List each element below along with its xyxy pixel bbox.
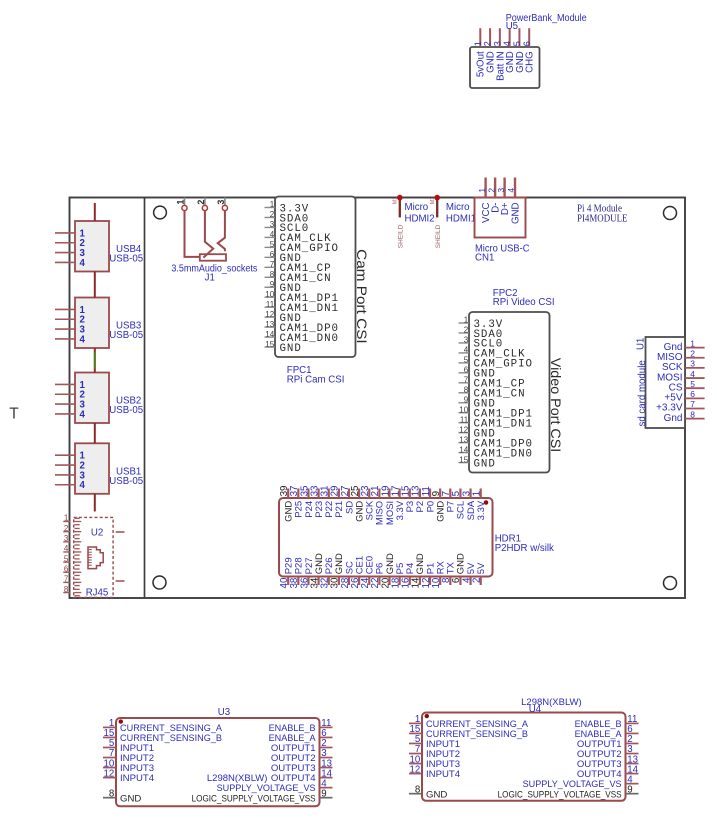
- svg-text:1: 1: [176, 200, 186, 205]
- svg-text:7: 7: [270, 260, 275, 269]
- svg-text:4: 4: [64, 544, 69, 553]
- svg-text:12: 12: [104, 768, 115, 779]
- svg-text:9: 9: [270, 280, 275, 289]
- svg-text:1: 1: [270, 200, 275, 209]
- svg-text:5: 5: [690, 379, 695, 389]
- svg-text:3: 3: [270, 220, 275, 229]
- svg-text:6: 6: [464, 366, 469, 375]
- svg-text:4: 4: [80, 480, 86, 491]
- svg-text:RJ45: RJ45: [86, 588, 109, 599]
- svg-text:1: 1: [472, 491, 483, 496]
- svg-text:15: 15: [459, 455, 468, 464]
- svg-text:U5: U5: [506, 21, 518, 32]
- svg-text:2: 2: [64, 524, 69, 533]
- svg-text:HDMI2: HDMI2: [405, 213, 435, 224]
- svg-text:5: 5: [270, 240, 275, 249]
- svg-text:PI4MODULE: PI4MODULE: [577, 213, 628, 225]
- svg-text:4: 4: [80, 258, 86, 269]
- svg-text:6: 6: [522, 41, 532, 46]
- svg-text:1: 1: [690, 338, 695, 348]
- svg-text:11: 11: [460, 415, 469, 424]
- svg-text:1: 1: [473, 41, 483, 46]
- svg-text:Micro: Micro: [405, 202, 429, 213]
- svg-text:13: 13: [459, 435, 468, 444]
- svg-text:U3: U3: [218, 707, 230, 718]
- svg-text:CN1: CN1: [475, 253, 494, 264]
- svg-text:GND: GND: [280, 343, 302, 355]
- svg-text:9: 9: [627, 784, 632, 795]
- svg-text:3: 3: [690, 359, 695, 369]
- svg-text:5: 5: [512, 41, 522, 46]
- svg-text:4: 4: [506, 188, 516, 193]
- svg-text:3: 3: [216, 200, 226, 205]
- svg-text:P2HDR w/silk: P2HDR w/silk: [495, 543, 554, 554]
- svg-text:6: 6: [64, 564, 69, 573]
- svg-text:3: 3: [496, 188, 506, 193]
- svg-text:1: 1: [64, 514, 69, 523]
- svg-text:INPUT4: INPUT4: [120, 773, 155, 784]
- svg-text:sd card module: sd card module: [637, 360, 648, 426]
- svg-text:USB-05: USB-05: [109, 330, 143, 341]
- svg-text:L298N(XBLW): L298N(XBLW): [207, 773, 268, 784]
- svg-text:3: 3: [464, 336, 469, 345]
- svg-text:2: 2: [472, 578, 483, 583]
- svg-text:LOGIC_SUPPLY_VOLTAGE_VSS: LOGIC_SUPPLY_VOLTAGE_VSS: [498, 789, 622, 800]
- svg-text:INPUT4: INPUT4: [426, 769, 461, 780]
- svg-text:SHEILD: SHEILD: [397, 224, 404, 248]
- svg-text:GND: GND: [510, 203, 521, 225]
- svg-text:LOGIC_SUPPLY_VOLTAGE_VSS: LOGIC_SUPPLY_VOLTAGE_VSS: [192, 793, 316, 804]
- svg-text:M1: M1: [430, 197, 436, 204]
- svg-text:8: 8: [270, 270, 275, 279]
- svg-text:9: 9: [321, 788, 326, 799]
- svg-text:2: 2: [464, 326, 469, 335]
- svg-text:U2: U2: [91, 528, 103, 539]
- svg-text:6: 6: [270, 250, 275, 259]
- svg-text:2: 2: [196, 200, 206, 205]
- svg-text:9: 9: [464, 395, 469, 404]
- svg-text:10: 10: [265, 290, 274, 299]
- svg-text:6: 6: [690, 389, 695, 399]
- svg-text:1: 1: [477, 188, 487, 193]
- svg-text:3: 3: [64, 534, 69, 543]
- svg-text:8: 8: [464, 385, 469, 394]
- svg-text:CHG: CHG: [525, 51, 536, 73]
- svg-text:13: 13: [265, 320, 274, 329]
- svg-text:4: 4: [690, 369, 695, 379]
- svg-text:4: 4: [502, 41, 512, 46]
- svg-text:HDMI1: HDMI1: [446, 213, 476, 224]
- svg-text:5V: 5V: [476, 562, 487, 574]
- svg-text:USB-05: USB-05: [109, 476, 143, 487]
- svg-text:2: 2: [483, 41, 493, 46]
- svg-text:GND: GND: [426, 789, 447, 800]
- svg-text:M1: M1: [393, 197, 399, 204]
- svg-text:12: 12: [459, 425, 468, 434]
- svg-text:3.3V: 3.3V: [476, 500, 487, 520]
- svg-text:12: 12: [265, 310, 274, 319]
- svg-text:4: 4: [270, 230, 275, 239]
- svg-text:T: T: [9, 405, 19, 422]
- svg-text:8: 8: [109, 788, 114, 799]
- svg-text:Gnd: Gnd: [664, 413, 683, 424]
- svg-text:U4: U4: [529, 704, 542, 715]
- svg-text:GND: GND: [474, 458, 496, 470]
- svg-text:Cam Port CSI: Cam Port CSI: [354, 249, 370, 344]
- svg-text:12: 12: [410, 764, 421, 775]
- svg-text:4: 4: [80, 334, 86, 345]
- svg-text:8: 8: [64, 585, 69, 594]
- svg-text:14: 14: [459, 445, 468, 454]
- svg-text:11: 11: [266, 300, 275, 309]
- svg-text:U1: U1: [635, 338, 646, 350]
- svg-text:3: 3: [492, 41, 502, 46]
- svg-text:4: 4: [464, 346, 469, 355]
- svg-text:D+: D+: [500, 202, 511, 215]
- svg-text:RPi Cam CSI: RPi Cam CSI: [287, 375, 345, 386]
- svg-text:15: 15: [265, 340, 274, 349]
- svg-text:4: 4: [80, 409, 86, 420]
- svg-text:10: 10: [459, 405, 468, 414]
- svg-text:2: 2: [690, 348, 695, 358]
- svg-text:2: 2: [486, 188, 496, 193]
- svg-text:5: 5: [64, 554, 69, 563]
- svg-text:RPi Video CSI: RPi Video CSI: [493, 297, 555, 308]
- svg-text:7: 7: [64, 575, 69, 584]
- svg-text:5: 5: [464, 356, 469, 365]
- svg-text:GND: GND: [120, 793, 141, 804]
- svg-text:USB-05: USB-05: [109, 405, 143, 416]
- svg-text:7: 7: [464, 376, 469, 385]
- svg-text:2: 2: [270, 210, 275, 219]
- svg-text:8: 8: [690, 409, 695, 419]
- svg-text:Micro: Micro: [446, 202, 470, 213]
- svg-text:USB-05: USB-05: [109, 254, 143, 265]
- svg-text:14: 14: [265, 330, 274, 339]
- svg-text:1: 1: [464, 316, 469, 325]
- svg-text:Video Port CSI: Video Port CSI: [548, 358, 564, 453]
- svg-text:J1: J1: [205, 273, 215, 284]
- svg-text:8: 8: [415, 784, 420, 795]
- svg-text:SHEILD: SHEILD: [435, 224, 442, 248]
- svg-text:7: 7: [690, 399, 695, 409]
